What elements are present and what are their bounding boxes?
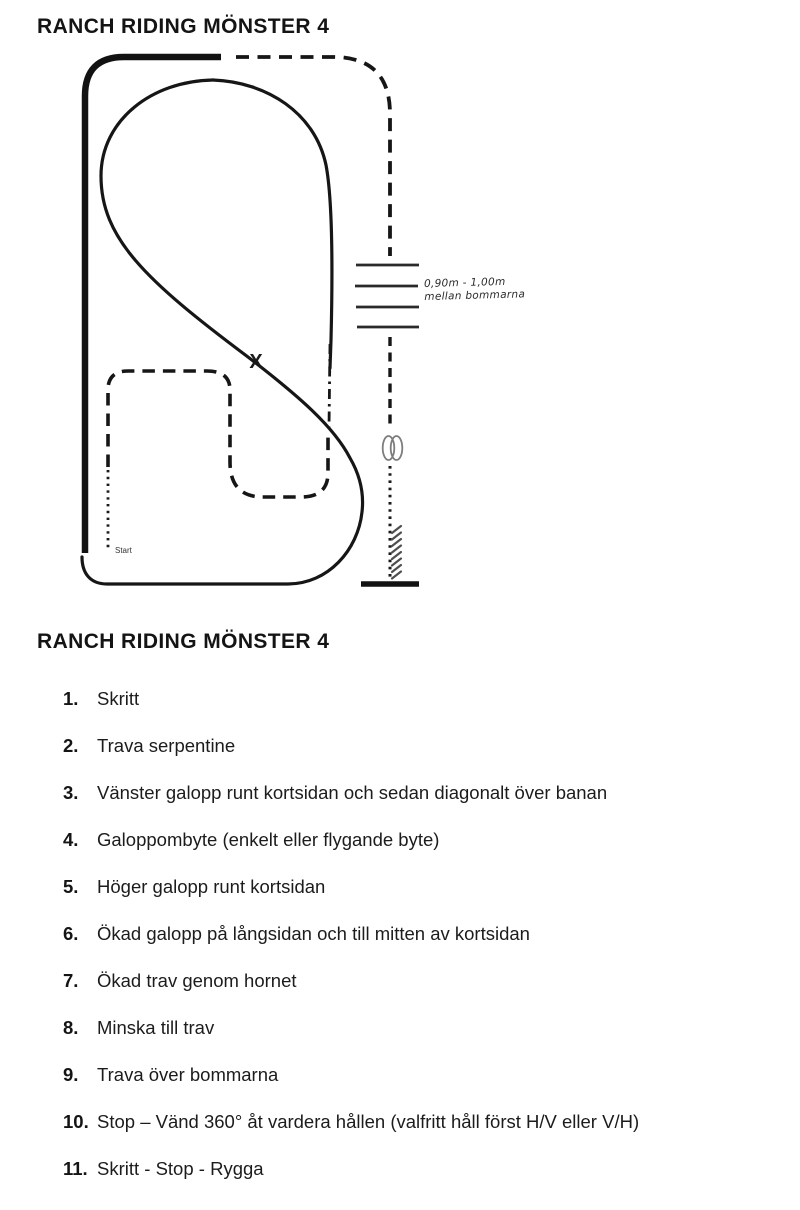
start-label: Start bbox=[115, 546, 133, 555]
list-item: 4. Galoppombyte (enkelt eller flygande b… bbox=[0, 830, 790, 849]
list-item: 8. Minska till trav bbox=[0, 1018, 790, 1037]
list-item: 10. Stop – Vänd 360° åt vardera hållen (… bbox=[0, 1112, 790, 1131]
pole-note-line2: mellan bommarna bbox=[424, 288, 525, 303]
item-number: 2. bbox=[63, 736, 89, 755]
item-number: 4. bbox=[63, 830, 89, 849]
item-number: 10. bbox=[63, 1112, 89, 1131]
pattern-list-heading: RANCH RIDING MÖNSTER 4 bbox=[37, 630, 329, 654]
backup-hatch-marks bbox=[392, 526, 401, 579]
item-number: 8. bbox=[63, 1018, 89, 1037]
pole-spacing-note: 0,90m - 1,00m mellan bommarna bbox=[424, 275, 525, 303]
list-item: 3. Vänster galopp runt kortsidan och sed… bbox=[0, 783, 790, 802]
list-item: 11. Skritt - Stop - Rygga bbox=[0, 1159, 790, 1178]
item-number: 7. bbox=[63, 971, 89, 990]
item-number: 1. bbox=[63, 689, 89, 708]
item-text: Vänster galopp runt kortsidan och sedan … bbox=[97, 783, 607, 802]
item-number: 11. bbox=[63, 1159, 89, 1178]
list-item: 9. Trava över bommarna bbox=[0, 1065, 790, 1084]
list-item: 1. Skritt bbox=[0, 689, 790, 708]
item-number: 9. bbox=[63, 1065, 89, 1084]
trot-poles bbox=[355, 265, 419, 327]
list-item: 2. Trava serpentine bbox=[0, 736, 790, 755]
item-text: Ökad galopp på långsidan och till mitten… bbox=[97, 924, 530, 943]
item-text: Skritt bbox=[97, 689, 139, 708]
list-item: 5. Höger galopp runt kortsidan bbox=[0, 877, 790, 896]
trot-serpentine-path bbox=[108, 371, 328, 497]
x-marker: X bbox=[249, 351, 263, 373]
item-text: Trava över bommarna bbox=[97, 1065, 278, 1084]
item-text: Ökad trav genom hornet bbox=[97, 971, 297, 990]
item-number: 6. bbox=[63, 924, 89, 943]
item-text: Galoppombyte (enkelt eller flygande byte… bbox=[97, 830, 439, 849]
arena-wall bbox=[85, 57, 221, 553]
list-item: 6. Ökad galopp på långsidan och till mit… bbox=[0, 924, 790, 943]
item-text: Minska till trav bbox=[97, 1018, 214, 1037]
lope-path-left-diagonal bbox=[82, 80, 363, 584]
item-text: Skritt - Stop - Rygga bbox=[97, 1159, 264, 1178]
trot-dashed-top-rail bbox=[236, 57, 390, 256]
item-number: 3. bbox=[63, 783, 89, 802]
list-item: 7. Ökad trav genom hornet bbox=[0, 971, 790, 990]
pole-note-line1: 0,90m - 1,00m bbox=[424, 276, 506, 290]
pattern-diagram: 0,90m - 1,00m mellan bommarna Sta bbox=[0, 0, 800, 622]
item-text: Trava serpentine bbox=[97, 736, 235, 755]
document-page: RANCH RIDING MÖNSTER 4 0,90m - 1,00m mel… bbox=[0, 0, 800, 1210]
spin-symbol bbox=[383, 436, 403, 460]
item-text: Höger galopp runt kortsidan bbox=[97, 877, 325, 896]
lope-path-right bbox=[213, 80, 332, 368]
item-text: Stop – Vänd 360° åt vardera hållen (valf… bbox=[97, 1112, 639, 1131]
pattern-list: 1. Skritt 2. Trava serpentine 3. Vänster… bbox=[0, 689, 790, 1206]
item-number: 5. bbox=[63, 877, 89, 896]
